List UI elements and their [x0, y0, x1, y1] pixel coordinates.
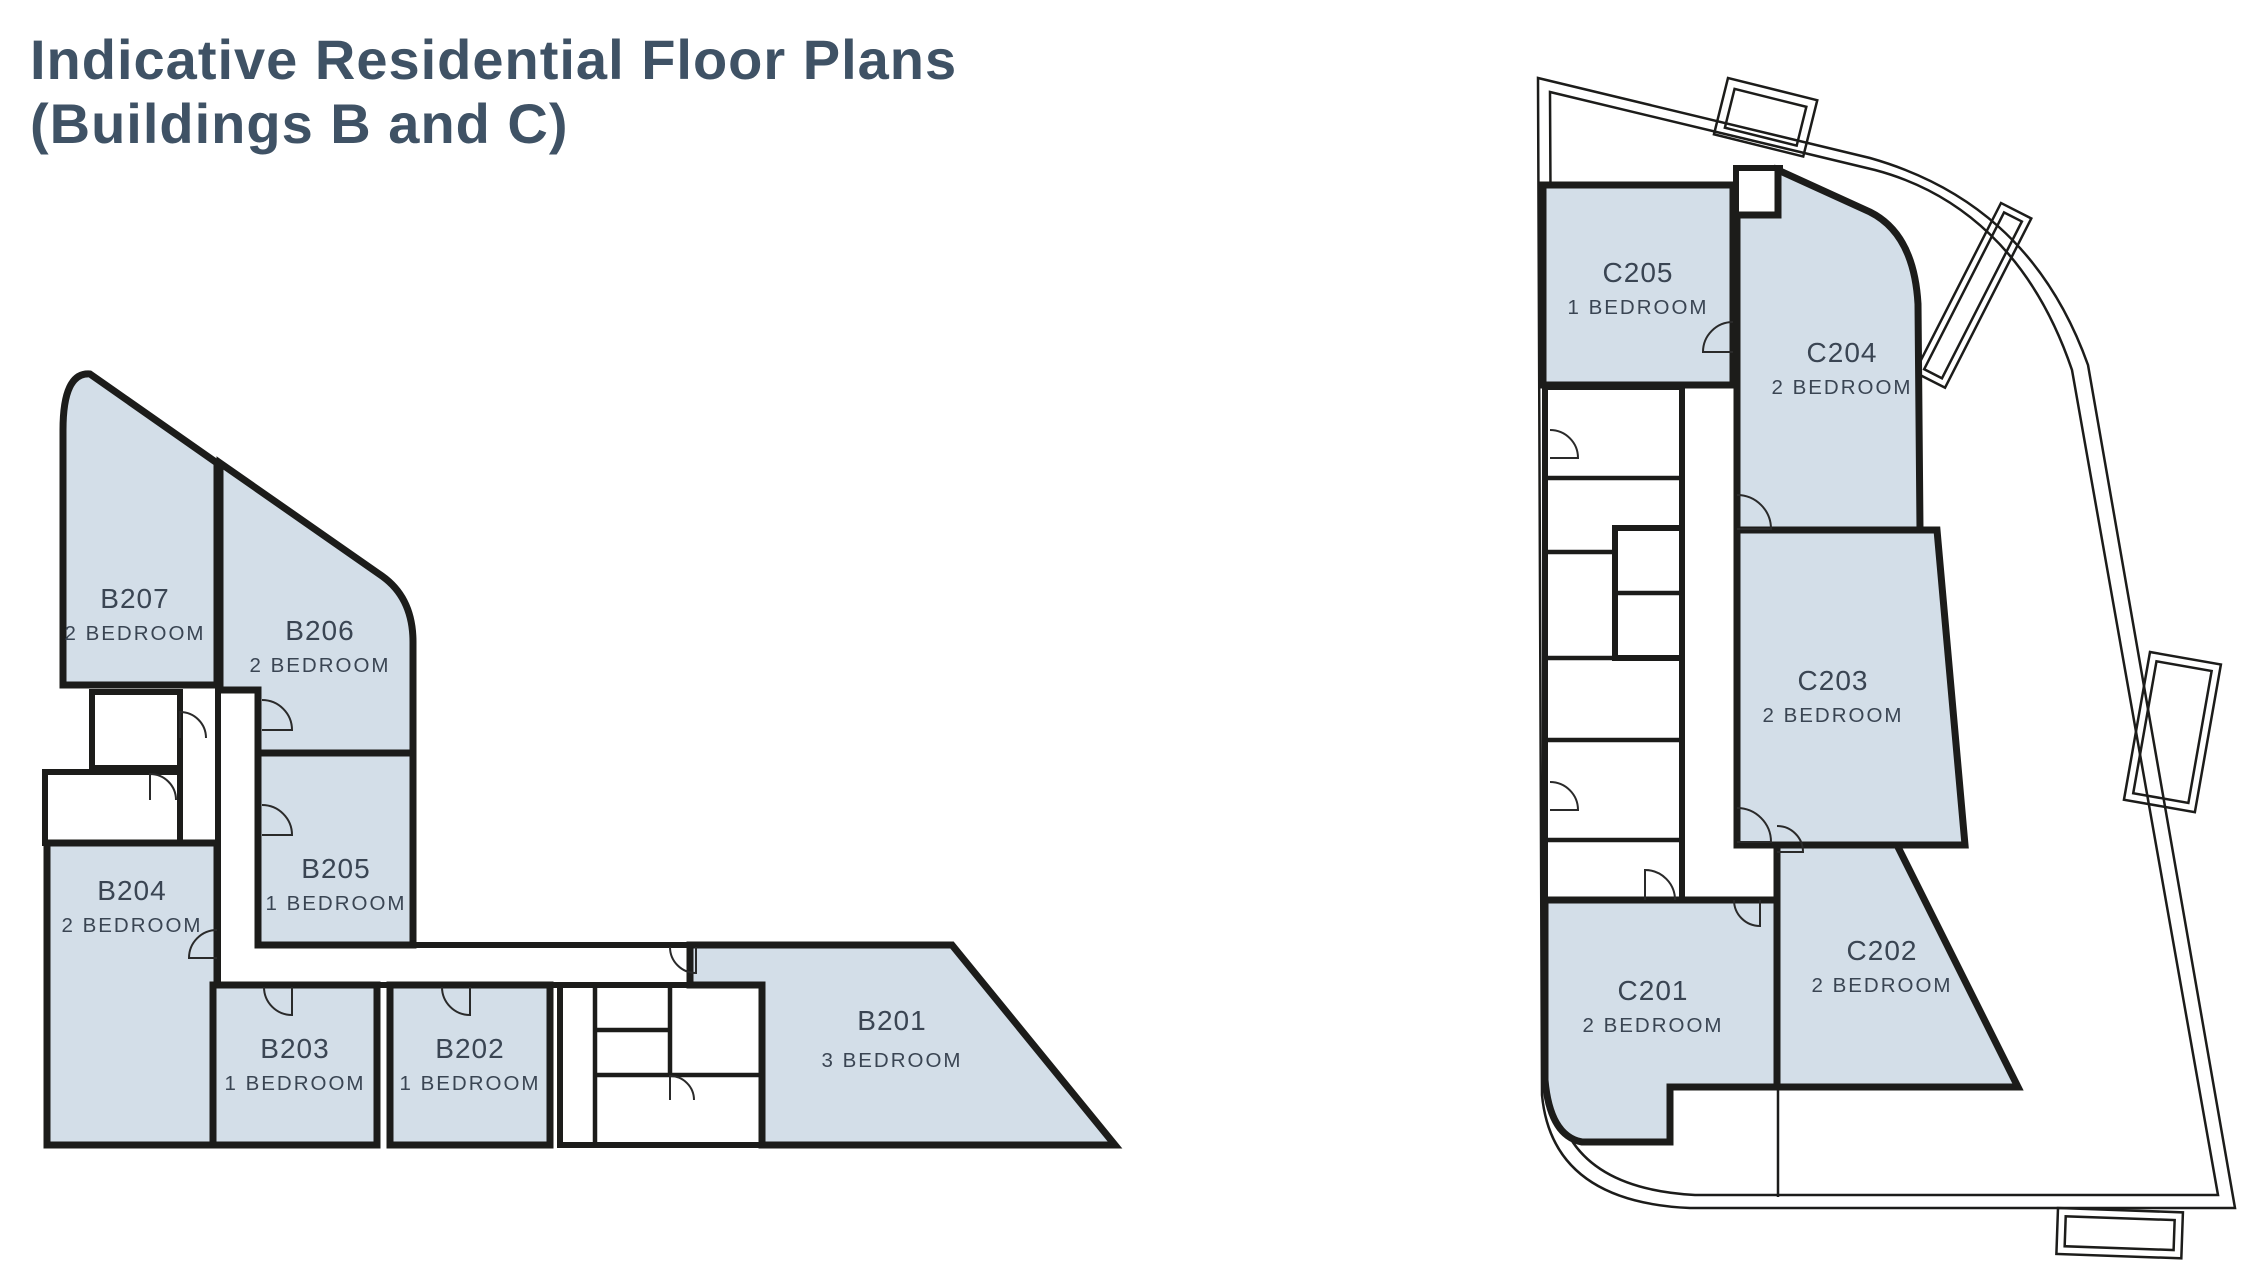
room-b203: B203 1 BEDROOM — [213, 985, 377, 1145]
room-b203-area — [213, 985, 377, 1145]
room-b205-unit-label: B205 — [301, 853, 370, 884]
balcony-upper-right-icon — [1915, 203, 2032, 388]
room-c202: C202 2 BEDROOM — [1777, 845, 2018, 1087]
room-c202-type-label: 2 BEDROOM — [1811, 974, 1952, 997]
building-b-utility-room-1 — [92, 692, 180, 768]
room-c203: C203 2 BEDROOM — [1737, 530, 1965, 845]
room-c203-unit-label: C203 — [1798, 665, 1869, 696]
room-b201-unit-label: B201 — [857, 1005, 926, 1036]
room-b203-unit-label: B203 — [260, 1033, 329, 1064]
room-c204-unit-label: C204 — [1807, 337, 1878, 368]
room-b206-unit-label: B206 — [285, 615, 354, 646]
room-c204-type-label: 2 BEDROOM — [1771, 376, 1912, 399]
room-b204-type-label: 2 BEDROOM — [61, 914, 202, 937]
room-b202-unit-label: B202 — [435, 1033, 504, 1064]
room-b205-type-label: 1 BEDROOM — [265, 892, 406, 915]
room-c205: C205 1 BEDROOM — [1543, 185, 1733, 385]
room-c201-unit-label: C201 — [1618, 975, 1689, 1006]
building-b-stair-core — [560, 985, 762, 1145]
room-c205-unit-label: C205 — [1603, 257, 1674, 288]
room-b205-area — [258, 753, 413, 945]
room-b201-type-label: 3 BEDROOM — [821, 1049, 962, 1072]
building-b-floorplan: B207 2 BEDROOM B206 2 BEDROOM B205 1 BED… — [30, 330, 1170, 1210]
room-b207-unit-label: B207 — [100, 583, 169, 614]
room-c204: C204 2 BEDROOM — [1737, 170, 1920, 530]
room-b207: B207 2 BEDROOM — [63, 374, 217, 685]
room-c201: C201 2 BEDROOM — [1545, 900, 1777, 1142]
room-c203-type-label: 2 BEDROOM — [1762, 704, 1903, 727]
room-b205: B205 1 BEDROOM — [258, 753, 413, 945]
building-b-utility-room-2 — [45, 772, 180, 843]
page-title: Indicative Residential Floor Plans (Buil… — [30, 28, 957, 156]
balcony-bottom-icon — [2056, 1208, 2183, 1258]
building-c-floorplan: C205 1 BEDROOM C204 2 BEDROOM C203 2 BED… — [1520, 40, 2245, 1270]
room-c202-unit-label: C202 — [1847, 935, 1918, 966]
room-b203-type-label: 1 BEDROOM — [224, 1072, 365, 1095]
balcony-mid-right-icon — [2124, 652, 2221, 812]
page-title-line1: Indicative Residential Floor Plans — [30, 28, 957, 92]
room-c201-type-label: 2 BEDROOM — [1582, 1014, 1723, 1037]
room-b207-type-label: 2 BEDROOM — [64, 622, 205, 645]
page-title-line2: (Buildings B and C) — [30, 92, 957, 156]
room-c202-area — [1777, 845, 2018, 1087]
room-c205-type-label: 1 BEDROOM — [1567, 296, 1708, 319]
room-b206-type-label: 2 BEDROOM — [249, 654, 390, 677]
room-b202-type-label: 1 BEDROOM — [399, 1072, 540, 1095]
room-b204: B204 2 BEDROOM — [47, 843, 217, 1145]
room-b204-unit-label: B204 — [97, 875, 166, 906]
building-c-entry-notch — [1736, 168, 1780, 215]
